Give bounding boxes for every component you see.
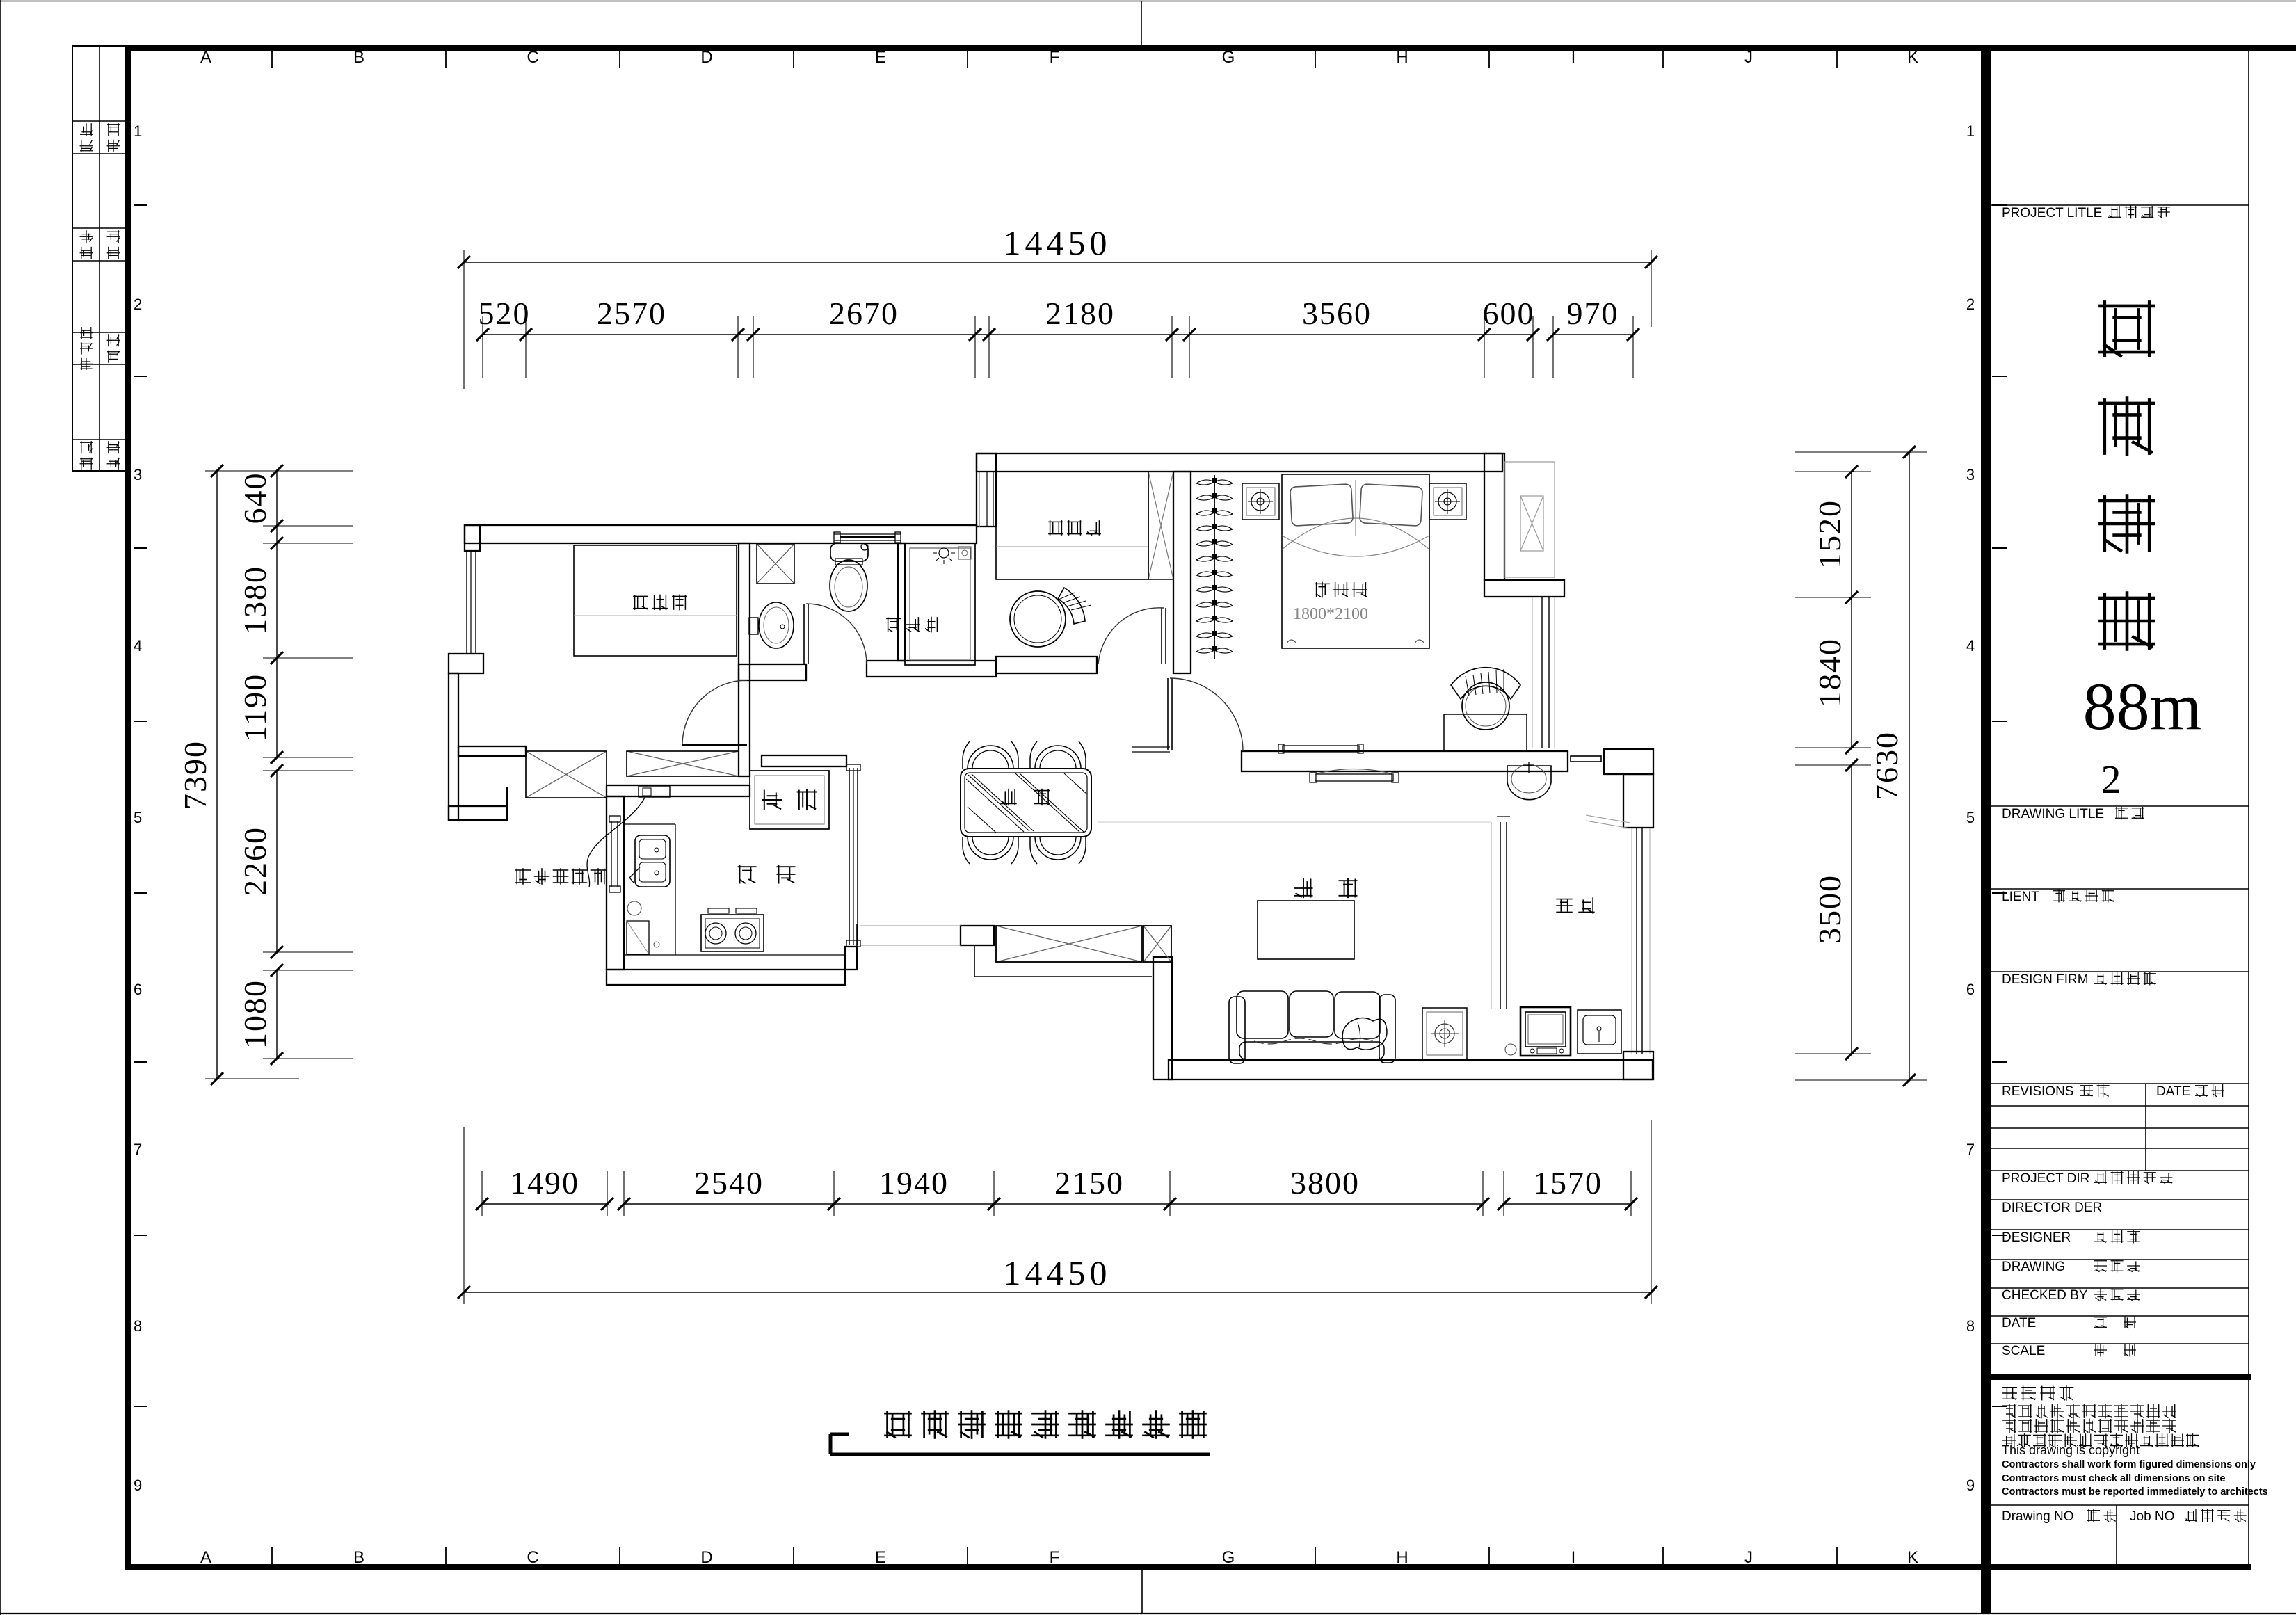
svg-text:3500: 3500: [1812, 874, 1847, 944]
svg-text:D: D: [700, 48, 712, 67]
svg-text:600: 600: [1483, 296, 1535, 331]
svg-text:640: 640: [237, 472, 273, 524]
svg-text:7: 7: [1966, 1141, 1975, 1158]
svg-text:DATE: DATE: [2002, 1316, 2036, 1331]
svg-text:7: 7: [134, 1141, 142, 1158]
svg-text:Job NO: Job NO: [2130, 1509, 2174, 1524]
svg-text:REVISIONS: REVISIONS: [2002, 1084, 2073, 1099]
svg-text:2670: 2670: [829, 296, 899, 331]
svg-text:9: 9: [1966, 1477, 1975, 1494]
svg-text:Contractors shall work form fi: Contractors shall work form figured dime…: [2002, 1459, 2256, 1470]
svg-text:E: E: [875, 1548, 886, 1567]
svg-text:7630: 7630: [1869, 731, 1904, 801]
svg-text:1380: 1380: [237, 565, 273, 635]
svg-text:I: I: [1571, 48, 1576, 67]
svg-text:4: 4: [1966, 637, 1975, 654]
svg-text:3: 3: [134, 466, 142, 483]
svg-text:G: G: [1222, 1548, 1235, 1567]
svg-text:14450: 14450: [1004, 223, 1111, 262]
svg-text:F: F: [1050, 48, 1060, 67]
svg-text:This drawing is copyright: This drawing is copyright: [2002, 1443, 2140, 1457]
svg-text:DATE: DATE: [2156, 1084, 2190, 1099]
svg-text:1: 1: [1966, 122, 1975, 140]
svg-text:F: F: [1050, 1548, 1060, 1567]
svg-text:1840: 1840: [1812, 638, 1847, 707]
svg-text:C: C: [527, 48, 538, 67]
svg-text:G: G: [1222, 48, 1235, 67]
svg-text:A: A: [200, 1548, 211, 1567]
svg-text:J: J: [1744, 48, 1753, 67]
svg-text:Contractors must check all dim: Contractors must check all dimensions on…: [2002, 1473, 2226, 1484]
svg-text:8: 8: [134, 1317, 142, 1335]
svg-text:SCALE: SCALE: [2002, 1344, 2045, 1358]
svg-text:B: B: [353, 48, 364, 67]
svg-text:PROJECT LITLE: PROJECT LITLE: [2002, 206, 2102, 220]
svg-text:2: 2: [1966, 296, 1975, 313]
svg-text:K: K: [1907, 48, 1918, 67]
svg-text:2: 2: [2101, 757, 2121, 802]
svg-text:1: 1: [134, 122, 142, 140]
svg-text:7390: 7390: [177, 740, 213, 810]
svg-text:Drawing NO: Drawing NO: [2002, 1509, 2073, 1524]
svg-text:LIENT: LIENT: [2002, 890, 2039, 904]
svg-text:9: 9: [134, 1477, 142, 1494]
svg-text:2570: 2570: [597, 296, 666, 331]
svg-text:1490: 1490: [510, 1165, 579, 1200]
svg-text:D: D: [700, 1548, 712, 1567]
svg-text:DRAWING LITLE: DRAWING LITLE: [2002, 807, 2104, 821]
svg-text:6: 6: [134, 981, 142, 998]
svg-text:A: A: [200, 48, 211, 67]
svg-text:DESIGNER: DESIGNER: [2002, 1230, 2071, 1245]
svg-text:DESIGN FIRM: DESIGN FIRM: [2002, 972, 2089, 987]
svg-text:PROJECT DIR: PROJECT DIR: [2002, 1171, 2089, 1186]
svg-text:14450: 14450: [1004, 1253, 1111, 1292]
svg-text:4: 4: [134, 637, 142, 654]
svg-text:1520: 1520: [1812, 499, 1847, 569]
svg-text:J: J: [1744, 1548, 1753, 1567]
svg-text:3: 3: [1966, 466, 1975, 483]
svg-text:B: B: [353, 1548, 364, 1567]
svg-text:2260: 2260: [237, 826, 273, 896]
svg-text:1800*2100: 1800*2100: [1293, 605, 1368, 623]
svg-text:6: 6: [1966, 981, 1975, 998]
svg-text:3800: 3800: [1290, 1165, 1360, 1200]
svg-text:H: H: [1396, 1548, 1408, 1567]
svg-text:8: 8: [1966, 1317, 1975, 1335]
svg-text:2540: 2540: [694, 1165, 764, 1200]
svg-text:1080: 1080: [237, 979, 273, 1049]
svg-text:88m: 88m: [2083, 669, 2202, 744]
svg-text:2180: 2180: [1045, 296, 1115, 331]
svg-text:K: K: [1907, 1548, 1918, 1567]
svg-text:CHECKED BY: CHECKED BY: [2002, 1288, 2088, 1303]
svg-text:2: 2: [134, 296, 142, 313]
svg-text:3560: 3560: [1302, 296, 1372, 331]
svg-text:5: 5: [134, 809, 142, 826]
svg-text:C: C: [527, 1548, 538, 1567]
svg-text:I: I: [1571, 1548, 1576, 1567]
svg-text:2150: 2150: [1054, 1165, 1124, 1200]
svg-text:520: 520: [479, 296, 531, 331]
svg-text:1570: 1570: [1533, 1165, 1603, 1200]
svg-text:1190: 1190: [237, 673, 273, 741]
svg-text:E: E: [875, 48, 886, 67]
svg-text:970: 970: [1567, 296, 1619, 331]
svg-text:1940: 1940: [879, 1165, 949, 1200]
svg-text:H: H: [1396, 48, 1408, 67]
svg-text:DRAWING: DRAWING: [2002, 1260, 2065, 1274]
svg-text:DIRECTOR DER: DIRECTOR DER: [2002, 1200, 2102, 1215]
svg-text:Contractors must be reported i: Contractors must be reported immediately…: [2002, 1486, 2268, 1497]
svg-text:5: 5: [1966, 809, 1975, 826]
